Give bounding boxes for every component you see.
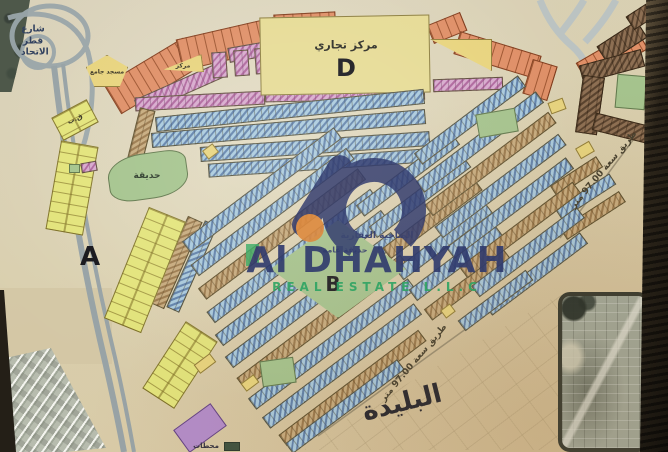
stations-label: محطات — [193, 442, 219, 450]
qb-label: ق.ب — [66, 112, 84, 126]
street-left-label: شارع قطر الاتحاد — [21, 24, 45, 59]
commercial-center-label: مركز تجاري — [314, 39, 377, 52]
zone-label-b: B — [325, 272, 340, 296]
map-labels-layer: ABDمركز تجاريحديقةحديقة عامةالبليدةطريق … — [0, 0, 668, 452]
road-97-right-label: طريق سعة 97.00 متر — [569, 129, 639, 210]
park-left-label: حديقة — [134, 171, 161, 181]
center-small-label: مركز — [176, 63, 191, 70]
master-plan-map-photo: ABDمركز تجاريحديقةحديقة عامةالبليدةطريق … — [0, 0, 668, 452]
park-b-label: حديقة عامة — [322, 246, 367, 255]
zone-label-a: A — [80, 242, 100, 272]
district-name-label: البليدة — [359, 379, 445, 428]
zone-label-d: D — [336, 54, 356, 82]
mosque-label: مسجد جامع — [90, 69, 124, 76]
